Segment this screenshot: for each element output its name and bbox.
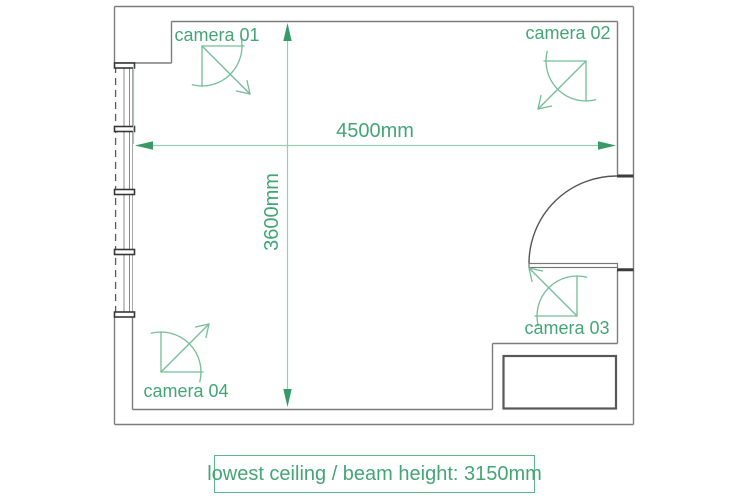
- ceiling-height-note-text: lowest ceiling / beam height: 3150mm: [207, 463, 542, 486]
- window-mullion: [115, 63, 135, 68]
- camera-02-label: camera 02: [525, 24, 610, 42]
- height-dimension-label: 3600mm: [262, 173, 282, 251]
- camera-02-icon: [538, 51, 596, 109]
- window-mullion: [115, 127, 135, 132]
- window-strip: [115, 63, 135, 317]
- ceiling-height-note-box: lowest ceiling / beam height: 3150mm: [214, 455, 535, 493]
- dim-width-arrow-right: [598, 141, 616, 149]
- camera-04-icon: [151, 324, 209, 382]
- floor-plan-drawing: [0, 0, 750, 500]
- dim-height-arrow-bottom: [283, 389, 291, 407]
- window-mullion: [115, 312, 135, 317]
- camera-03-label: camera 03: [524, 319, 609, 337]
- dim-height-arrow-top: [283, 23, 291, 41]
- alcove-fixture: [504, 356, 617, 409]
- door-leaf: [529, 264, 618, 268]
- door: [529, 176, 634, 270]
- width-dimension-label: 4500mm: [336, 121, 414, 141]
- window-mullion: [115, 190, 135, 195]
- door-swing-arc: [529, 176, 618, 264]
- camera-04-label: camera 04: [143, 382, 228, 400]
- camera-01-label: camera 01: [174, 26, 259, 44]
- dim-width-arrow-left: [135, 141, 153, 149]
- window-mullion: [115, 250, 135, 255]
- floor-plan-canvas: camera 01 camera 02 camera 03 camera 04 …: [0, 0, 750, 500]
